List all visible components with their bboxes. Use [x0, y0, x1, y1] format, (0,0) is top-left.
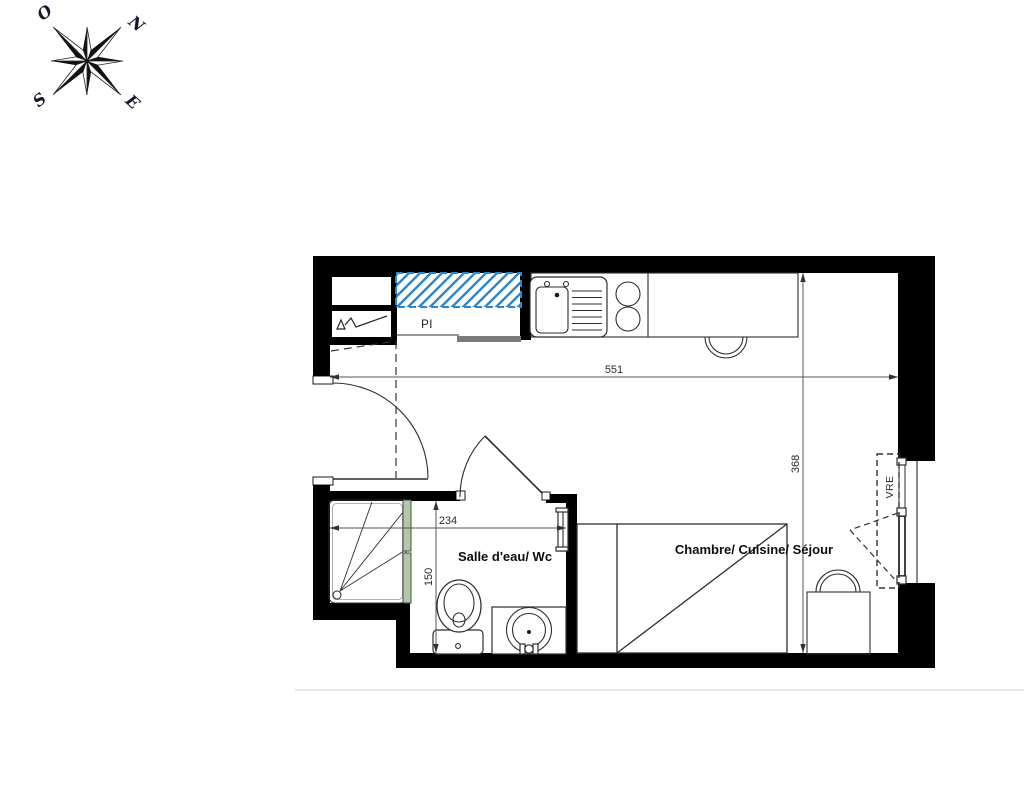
stool: [705, 337, 747, 358]
compass-label-south: S: [29, 89, 50, 111]
door-hinge: [542, 492, 550, 500]
dimension-total-width: 551: [330, 364, 898, 380]
window-lower-sash: [899, 516, 905, 576]
shower-spray-lines: [340, 502, 404, 591]
bathroom-door-swing-arc: [460, 436, 485, 497]
compass-rose: O N S E: [29, 1, 149, 114]
washbasin: [492, 607, 566, 654]
door-jamb: [313, 477, 333, 485]
technical-closet-lower: [332, 311, 391, 337]
shower-drain: [333, 591, 341, 599]
compass-label-east: E: [121, 90, 144, 113]
dim-368-label: 368: [790, 455, 802, 473]
pi-closet-label: PI: [421, 319, 433, 331]
bathroom-door: [456, 436, 550, 500]
pi-closet-hatched-area: [396, 273, 521, 307]
chair: [807, 570, 870, 654]
dim-551-label: 551: [605, 364, 623, 376]
chair-seat: [807, 592, 870, 654]
compass-label-north: N: [124, 11, 149, 36]
toilet-tank: [433, 630, 483, 654]
window-upper-sash: [899, 464, 905, 508]
entry-door: [313, 376, 428, 485]
kitchen-counter: [530, 273, 798, 358]
shutter-label: VRE: [884, 475, 896, 498]
bathroom-label: Salle d'eau/ Wc: [458, 549, 552, 564]
floor-plan-canvas: O N S E: [0, 0, 1024, 800]
entry-hall-lines: [331, 341, 396, 478]
entry-door-swing-arc: [333, 383, 428, 478]
exterior-walls: [313, 256, 935, 668]
bathroom-door-leaf: [485, 436, 546, 497]
window: VRE: [850, 454, 917, 588]
dimension-bathroom-depth: 150: [423, 501, 439, 653]
shutter-box-dashed: [877, 454, 899, 588]
closet-sliding-door: [457, 336, 521, 342]
dim-150-label: 150: [423, 568, 435, 586]
shower-glass-panel: [403, 500, 411, 603]
technical-closet-upper: [332, 277, 391, 305]
compass-label-west: O: [33, 1, 56, 25]
kitchen-sink: [530, 277, 607, 337]
toilet: [433, 580, 483, 654]
dimension-bathroom-width: 234: [330, 515, 566, 531]
faucet-dot: [555, 293, 560, 298]
toilet-bowl: [437, 580, 481, 632]
cooktop: [616, 282, 640, 331]
pi-closet: PI: [396, 273, 521, 342]
floor-plan-page: O N S E: [0, 0, 1024, 800]
dim-234-label: 234: [439, 515, 457, 527]
window-swing-dashed: [850, 513, 898, 583]
compass-star: [51, 27, 123, 95]
shower: [329, 500, 411, 603]
faucet: [525, 645, 533, 653]
main-room-label: Chambre/ Cuisine/ Séjour: [675, 542, 833, 557]
